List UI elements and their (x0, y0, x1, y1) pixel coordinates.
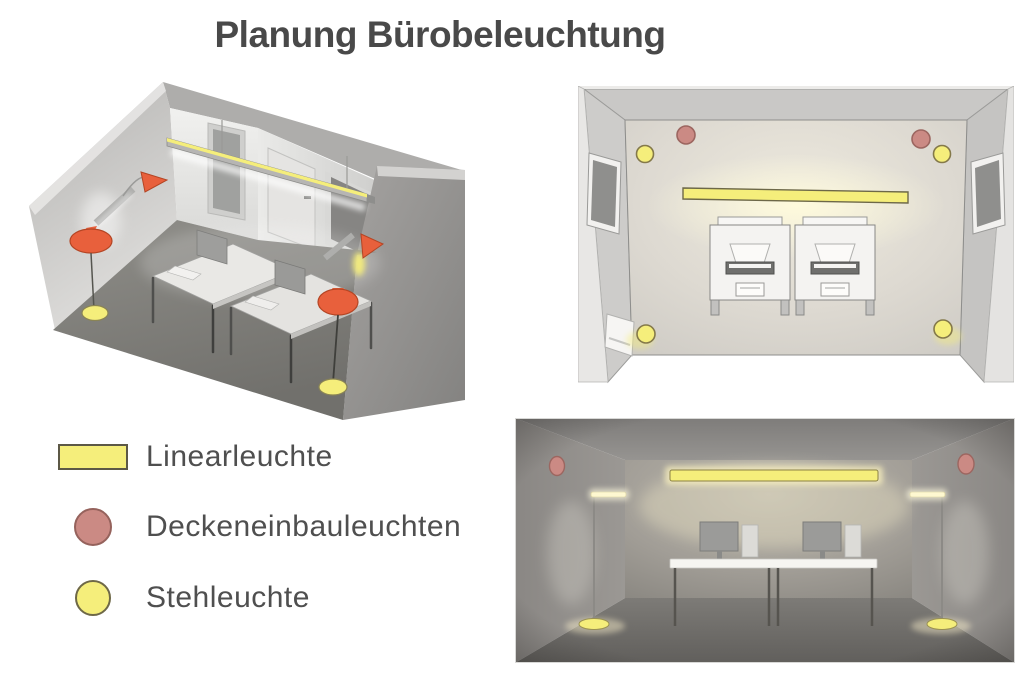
floor-lamp-base-marker (82, 306, 108, 321)
plan-desk (795, 217, 875, 315)
legend-label: Deckeneinbauleuchten (146, 512, 461, 542)
isometric-room-illustration (25, 68, 465, 430)
plan-floor-lamp (934, 320, 952, 338)
front-view-illustration (515, 418, 1015, 663)
legend-item-linearleuchte: Linearleuchte (58, 442, 333, 472)
plan-window-right (975, 160, 1001, 227)
isometric-room-view (25, 68, 465, 430)
plan-desk (710, 217, 790, 315)
front-vignette (515, 418, 1015, 663)
floor-lamp-head-marker (70, 229, 112, 253)
floor-lamp-head-marker (318, 289, 358, 315)
iso-door-handle (304, 196, 311, 199)
plan-ceiling-spot (677, 126, 695, 144)
linearleuchte-swatch-icon (58, 444, 128, 470)
stehleuchte-swatch-icon (75, 580, 111, 616)
plan-floor-lamp (637, 146, 654, 163)
page-title: Planung Bürobeleuchtung (0, 14, 880, 56)
legend-item-stehleuchte: Stehleuchte (58, 580, 310, 616)
plan-floor-lamp (934, 146, 951, 163)
plan-wall-top-outer (578, 86, 1014, 89)
floor-lamp-base-marker (319, 379, 347, 395)
deckeneinbauleuchten-swatch-icon (74, 508, 112, 546)
plan-window-left (591, 160, 617, 227)
legend-label: Stehleuchte (146, 583, 310, 613)
front-section-view (515, 418, 1015, 663)
infographic-canvas: Planung Bürobeleuchtung (0, 0, 1024, 683)
legend-label: Linearleuchte (146, 442, 333, 472)
legend-item-deckeneinbauleuchten: Deckeneinbauleuchten (58, 508, 461, 546)
plan-ceiling-spot (912, 130, 930, 148)
plan-wall-top (584, 89, 1008, 120)
plan-floor-lamp (637, 325, 655, 343)
plan-view-illustration (578, 86, 1014, 386)
top-down-plan-view (578, 86, 1014, 386)
